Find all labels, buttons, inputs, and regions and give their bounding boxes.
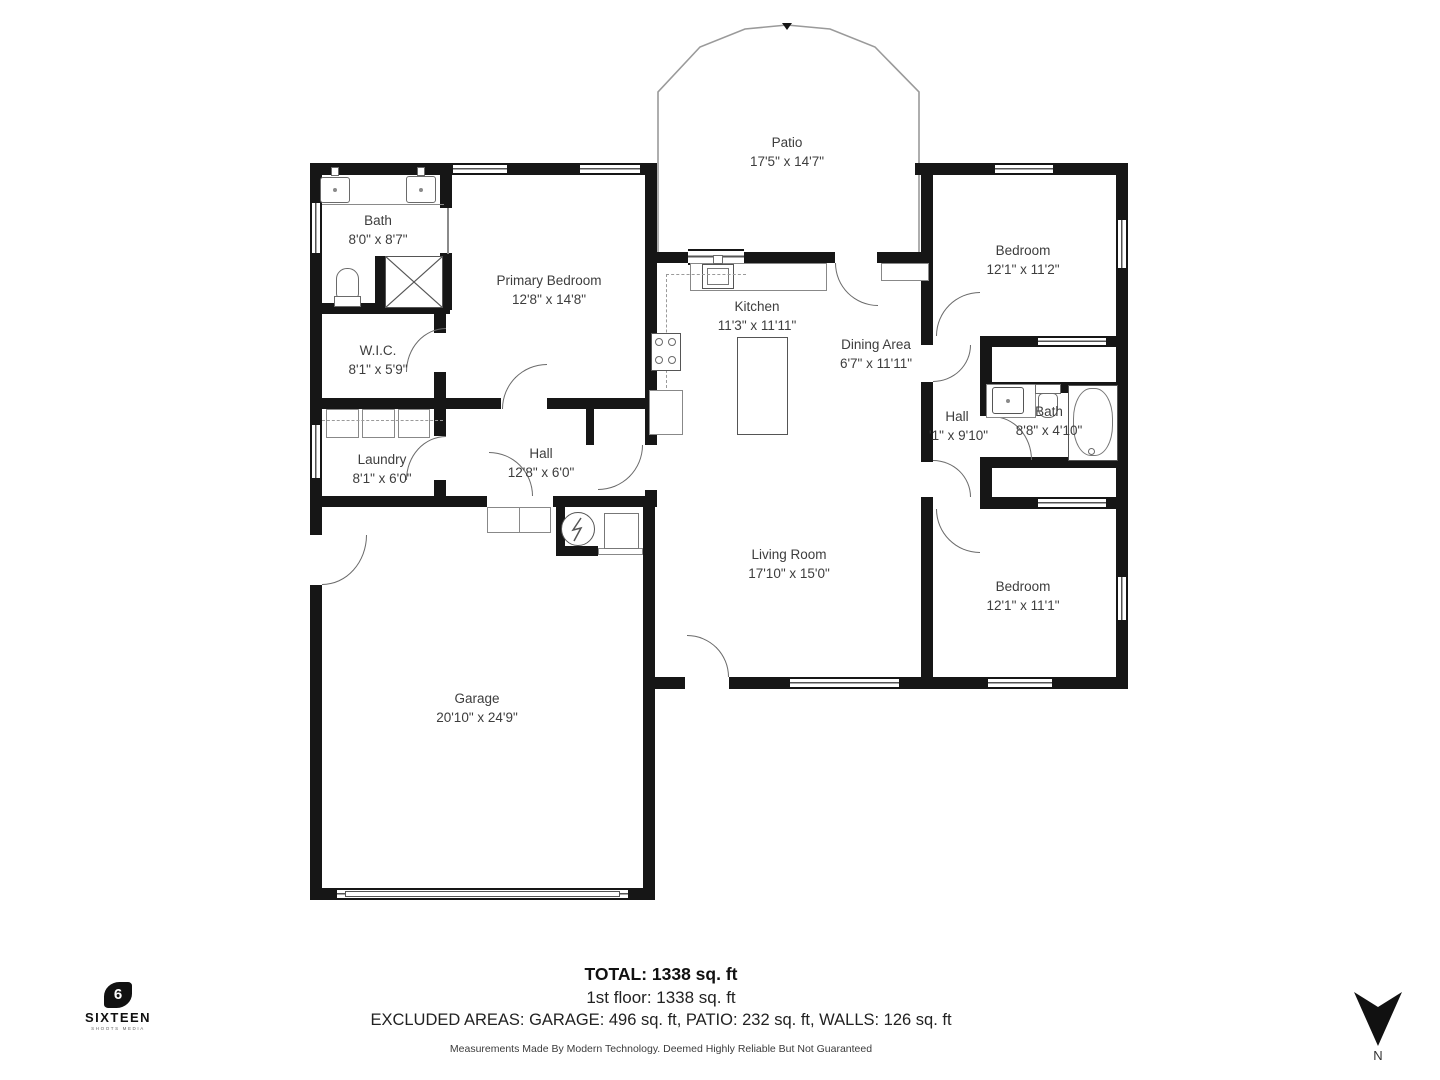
- room-dims: 20'10" x 24'9": [367, 709, 587, 728]
- room-label-bath-west: Bath 8'0" x 8'7": [268, 212, 488, 249]
- room-label-hall-west: Hall 12'8" x 6'0": [431, 445, 651, 482]
- vanity-counter-edge: [322, 204, 444, 205]
- room-dims: 12'8" x 6'0": [431, 464, 651, 483]
- room-label-living: Living Room 17'10" x 15'0": [679, 546, 899, 583]
- footer-disclaimer: Measurements Made By Modern Technology. …: [261, 1043, 1061, 1055]
- room-label-kitchen: Kitchen 11'3" x 11'11": [647, 298, 867, 335]
- closet-sliding-door: [1038, 497, 1106, 509]
- garage-side-door: [322, 535, 367, 585]
- room-dims: 8'8" x 4'10": [939, 422, 1159, 441]
- room-dims: 12'1" x 11'2": [913, 261, 1133, 280]
- logo-tagline: SHOOTS MEDIA: [62, 1026, 174, 1031]
- room-name: Living Room: [679, 546, 899, 565]
- bedroom-bottom-door: [936, 509, 980, 553]
- room-label-garage: Garage 20'10" x 24'9": [367, 690, 587, 727]
- room-dims: 11'3" x 11'11": [647, 317, 867, 336]
- faucet: [713, 255, 723, 264]
- garage-door-panel: [345, 891, 620, 897]
- closet-sliding-door: [1038, 336, 1106, 347]
- room-label-dining: Dining Area 6'7" x 11'11": [766, 336, 986, 373]
- laundry-cabinet: [398, 409, 430, 438]
- room-dims: 17'5" x 14'7": [677, 153, 897, 172]
- sink-drain: [333, 188, 337, 192]
- water-heater-bolt-icon: [561, 512, 595, 546]
- compass-label: N: [1352, 1048, 1404, 1063]
- footer-total: TOTAL: 1338 sq. ft: [261, 964, 1061, 985]
- bedroom-top-door: [936, 292, 980, 336]
- tub-drain: [1088, 448, 1095, 455]
- utility-threshold: [598, 548, 643, 555]
- room-name: W.I.C.: [268, 342, 488, 361]
- kitchen-cabinet: [649, 390, 683, 435]
- kitchen-sink-basin: [707, 268, 729, 285]
- room-dims: 12'8" x 14'8": [439, 291, 659, 310]
- burner: [668, 338, 676, 346]
- footer-first-floor: 1st floor: 1338 sq. ft: [261, 988, 1061, 1008]
- dryer-fixture: [362, 409, 395, 438]
- room-dims: 8'1" x 5'9": [268, 361, 488, 380]
- living-exterior-door: [687, 635, 729, 677]
- room-name: Kitchen: [647, 298, 867, 317]
- burner: [668, 356, 676, 364]
- room-name: Hall: [431, 445, 651, 464]
- window: [995, 163, 1053, 175]
- floor-plan-canvas: Patio 17'5" x 14'7" Bath 8'0" x 8'7" Pri…: [0, 0, 1440, 1080]
- room-label-bedroom-top: Bedroom 12'1" x 11'2": [913, 242, 1133, 279]
- washer-fixture: [326, 409, 359, 438]
- window: [453, 163, 507, 175]
- room-dims: 8'0" x 8'7": [268, 231, 488, 250]
- window: [598, 163, 640, 175]
- room-label-primary-bedroom: Primary Bedroom 12'8" x 14'8": [439, 272, 659, 309]
- logo: 6 SIXTEEN SHOOTS MEDIA: [62, 982, 174, 1031]
- toilet-tank: [334, 296, 361, 307]
- laundry-counter-line: [322, 420, 443, 421]
- room-name: Bedroom: [913, 578, 1133, 597]
- room-name: Dining Area: [766, 336, 986, 355]
- room-label-patio: Patio 17'5" x 14'7": [677, 134, 897, 171]
- room-label-bedroom-bottom: Bedroom 12'1" x 11'1": [913, 578, 1133, 615]
- room-name: Patio: [677, 134, 897, 153]
- room-name: Bedroom: [913, 242, 1133, 261]
- sink-drain: [419, 188, 423, 192]
- primary-bedroom-door: [502, 364, 547, 409]
- room-dims: 6'7" x 11'11": [766, 355, 986, 374]
- footer-excluded-areas: EXCLUDED AREAS: GARAGE: 496 sq. ft, PATI…: [261, 1011, 1061, 1030]
- room-dims: 17'10" x 15'0": [679, 565, 899, 584]
- room-label-bath-right: Bath 8'8" x 4'10": [939, 403, 1159, 440]
- north-arrow-icon: [1354, 992, 1402, 1046]
- logo-mark: 6: [104, 982, 132, 1008]
- burner: [655, 338, 663, 346]
- compass: N: [1352, 992, 1404, 1063]
- room-dims: 12'1" x 11'1": [913, 597, 1133, 616]
- entry-step-line: [519, 507, 520, 533]
- faucet: [417, 167, 425, 176]
- hall-lower-door: [933, 460, 971, 497]
- shower-x: [385, 256, 443, 308]
- window: [790, 677, 899, 689]
- room-name: Garage: [367, 690, 587, 709]
- upper-cabinet-line: [666, 274, 746, 275]
- room-name: Primary Bedroom: [439, 272, 659, 291]
- room-name: Bath: [268, 212, 488, 231]
- hvac-fixture: [604, 513, 639, 549]
- room-label-wic: W.I.C. 8'1" x 5'9": [268, 342, 488, 379]
- logo-text: SIXTEEN: [62, 1010, 174, 1025]
- faucet: [331, 167, 339, 176]
- burner: [655, 356, 663, 364]
- toilet-fixture: [336, 268, 359, 299]
- window: [988, 677, 1052, 689]
- room-name: Bath: [939, 403, 1159, 422]
